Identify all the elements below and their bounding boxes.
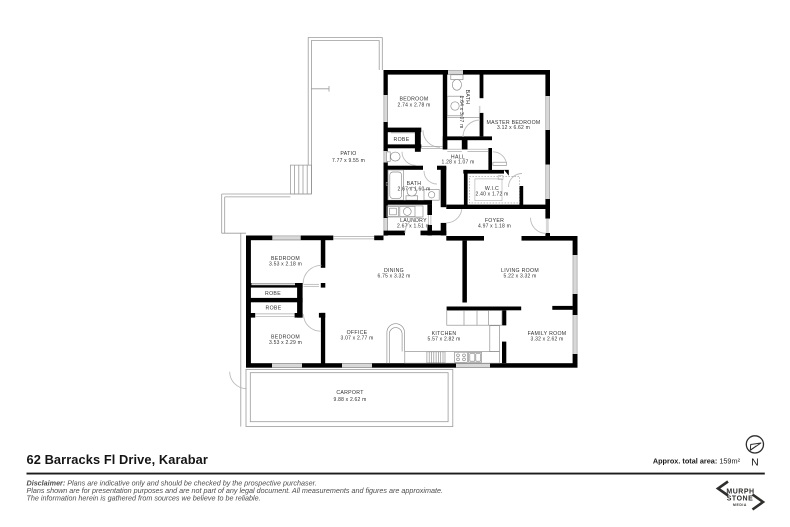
svg-text:2.67 x 1.60 m: 2.67 x 1.60 m xyxy=(398,186,431,192)
svg-text:2.74 x 2.78 m: 2.74 x 2.78 m xyxy=(398,102,431,108)
svg-text:1.28 x 1.07 m: 1.28 x 1.07 m xyxy=(442,160,475,166)
svg-text:3.53 x 2.18 m: 3.53 x 2.18 m xyxy=(269,262,302,268)
svg-text:PATIO: PATIO xyxy=(340,151,356,157)
svg-text:3.53 x 2.29 m: 3.53 x 2.29 m xyxy=(269,340,302,346)
svg-text:N: N xyxy=(751,457,759,469)
svg-text:ROBE: ROBE xyxy=(265,291,281,297)
svg-text:The information herein is gath: The information herein is gathered from … xyxy=(27,494,261,503)
svg-text:ROBE: ROBE xyxy=(394,137,410,143)
svg-text:STONE: STONE xyxy=(727,495,754,502)
svg-text:5.57 x 2.82 m: 5.57 x 2.82 m xyxy=(428,337,461,343)
svg-text:CARPORT: CARPORT xyxy=(336,390,364,396)
svg-text:62 Barracks Fl Drive, Karabar: 62 Barracks Fl Drive, Karabar xyxy=(27,452,208,467)
svg-text:3.07 x 2.77 m: 3.07 x 2.77 m xyxy=(341,336,374,342)
svg-text:4.97 x 1.18 m: 4.97 x 1.18 m xyxy=(478,223,511,229)
svg-text:Approx. total area: 159m²: Approx. total area: 159m² xyxy=(653,456,741,465)
svg-text:ROBE: ROBE xyxy=(266,306,282,312)
svg-text:6.75 x 3.32 m: 6.75 x 3.32 m xyxy=(378,274,411,280)
svg-text:3.32 x 2.62 m: 3.32 x 2.62 m xyxy=(531,337,564,343)
svg-text:2.67 x 1.51 m: 2.67 x 1.51 m xyxy=(397,224,430,230)
svg-text:7.77 x 9.55 m: 7.77 x 9.55 m xyxy=(332,158,365,164)
svg-text:1.64 x 3.07 m: 1.64 x 3.07 m xyxy=(458,96,464,129)
svg-text:5.22 x 3.32 m: 5.22 x 3.32 m xyxy=(504,274,537,280)
svg-text:MEDIA: MEDIA xyxy=(733,503,747,507)
svg-text:9.88 x 2.62 m: 9.88 x 2.62 m xyxy=(334,397,367,403)
svg-text:3.12 x 6.62 m: 3.12 x 6.62 m xyxy=(497,125,530,131)
svg-text:2.40 x 1.72 m: 2.40 x 1.72 m xyxy=(476,192,509,198)
